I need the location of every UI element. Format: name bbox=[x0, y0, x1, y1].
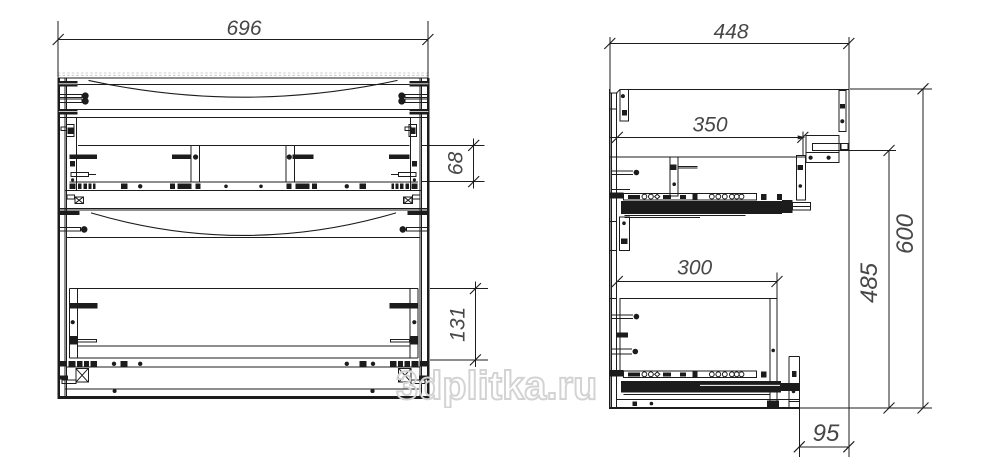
svg-text:68: 68 bbox=[445, 151, 468, 175]
svg-text:350: 350 bbox=[692, 114, 727, 137]
svg-text:600: 600 bbox=[892, 213, 919, 254]
svg-text:485: 485 bbox=[856, 262, 883, 303]
svg-text:696: 696 bbox=[226, 17, 261, 40]
svg-text:448: 448 bbox=[713, 21, 748, 44]
svg-text:131: 131 bbox=[447, 307, 470, 342]
svg-text:300: 300 bbox=[677, 257, 712, 280]
svg-text:95: 95 bbox=[813, 420, 840, 447]
